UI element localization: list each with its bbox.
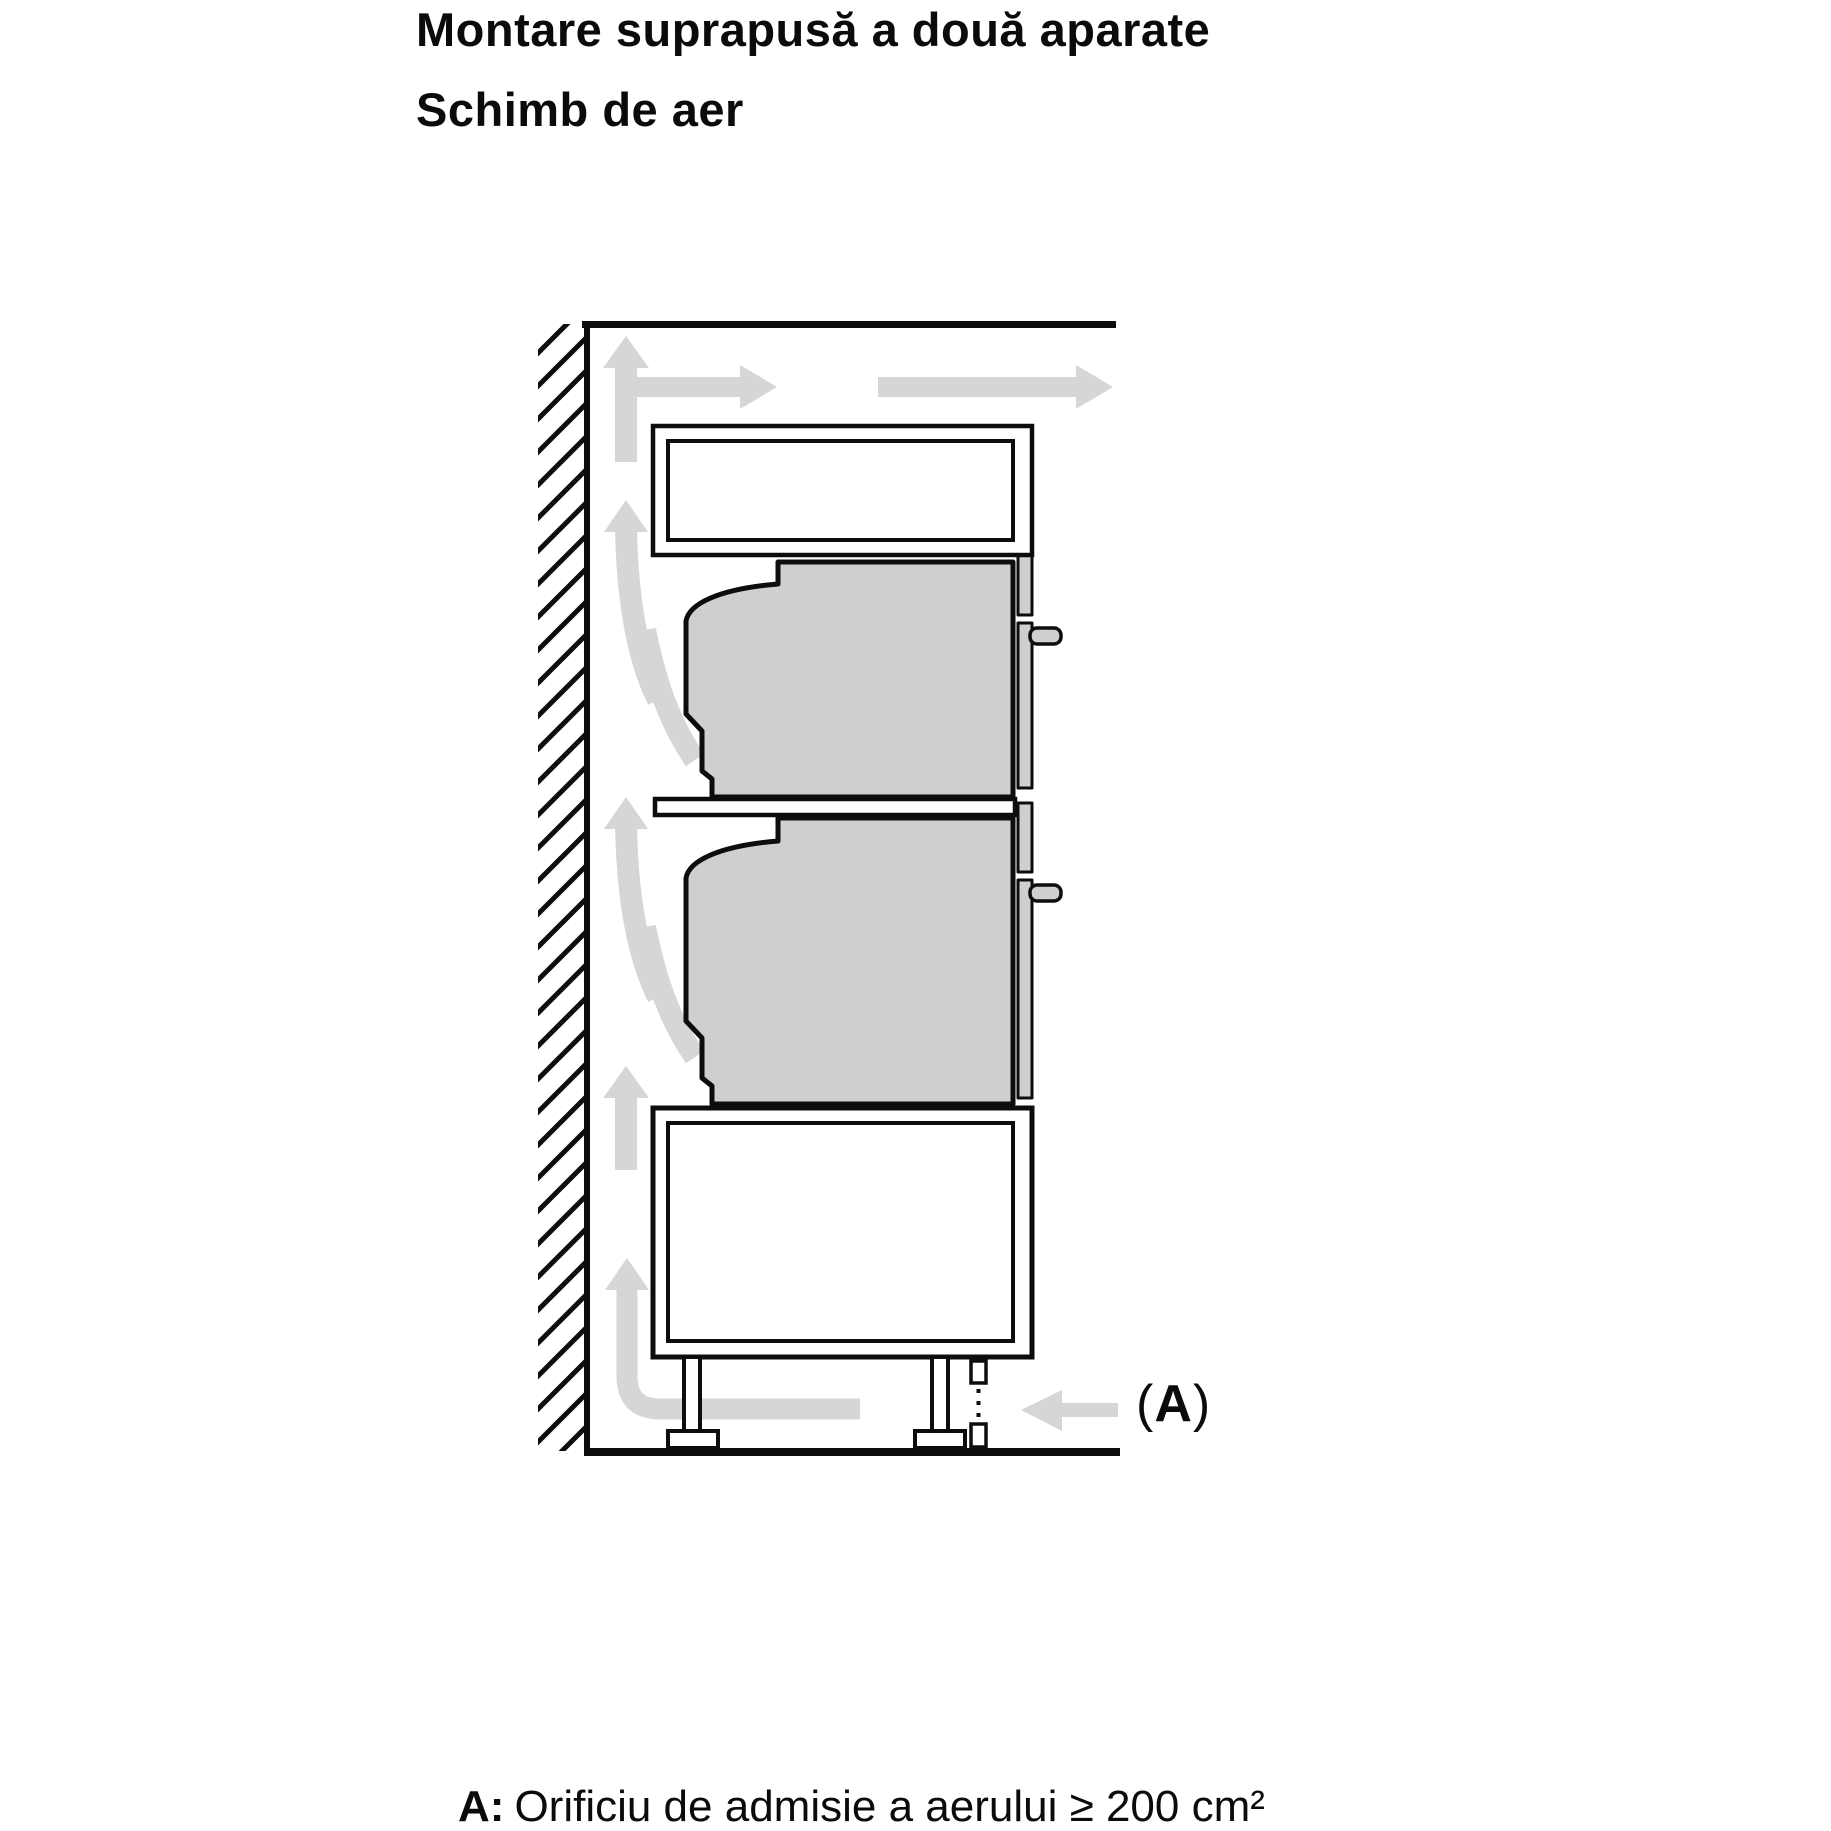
air-inlet-label-open: ( xyxy=(1136,1375,1154,1433)
airflow-inlet-arrow xyxy=(1021,1390,1118,1431)
air-inlet-label-letter: A xyxy=(1154,1375,1193,1433)
top-compartment-outer xyxy=(653,426,1032,555)
airflow-l-arrowhead-bottom xyxy=(605,1258,649,1290)
leg-foot-left xyxy=(668,1431,718,1448)
lower-oven-handle xyxy=(1030,885,1061,901)
cabinet-leg-right xyxy=(932,1357,948,1433)
wall xyxy=(538,321,590,1452)
airflow-up-arrow-middle xyxy=(603,1066,649,1170)
air-inlet-label: (A) xyxy=(1136,1374,1211,1434)
lower-oven-door xyxy=(1018,880,1032,1098)
plinth-vent-marker-top xyxy=(971,1361,986,1383)
caption: A:Orificiu de admisie a aerului ≥ 200 cm… xyxy=(458,1782,1265,1831)
middle-shelf xyxy=(655,799,1015,815)
plinth-vent-marker-bottom xyxy=(971,1424,986,1447)
upper-oven-handle xyxy=(1030,628,1061,644)
airflow-up-arrow-top xyxy=(603,336,649,462)
upper-oven-body xyxy=(686,562,1013,797)
wall-hatching xyxy=(538,324,587,1451)
airflow-right-arrow-outer xyxy=(878,365,1113,409)
upper-oven-front-top xyxy=(1018,553,1032,615)
page: Montare suprapusă a două aparate Schimb … xyxy=(0,0,1831,1831)
base-cabinet-outer xyxy=(653,1108,1032,1357)
niche-top-line xyxy=(582,321,1116,328)
installation-diagram xyxy=(0,0,1831,1831)
lower-oven-body xyxy=(686,818,1013,1104)
floor-line xyxy=(584,1448,1120,1456)
leg-foot-right xyxy=(915,1431,965,1448)
wall-face-line xyxy=(584,321,590,1452)
air-inlet-label-close: ) xyxy=(1193,1375,1211,1433)
airflow-right-arrow-inner xyxy=(633,365,777,409)
lower-oven-front-top xyxy=(1018,803,1032,872)
cabinet-leg-left xyxy=(684,1357,700,1433)
caption-label: A: xyxy=(458,1782,504,1831)
caption-text: Orificiu de admisie a aerului ≥ 200 cm² xyxy=(514,1782,1264,1831)
appliances xyxy=(686,553,1061,1104)
upper-oven-door xyxy=(1018,623,1032,788)
